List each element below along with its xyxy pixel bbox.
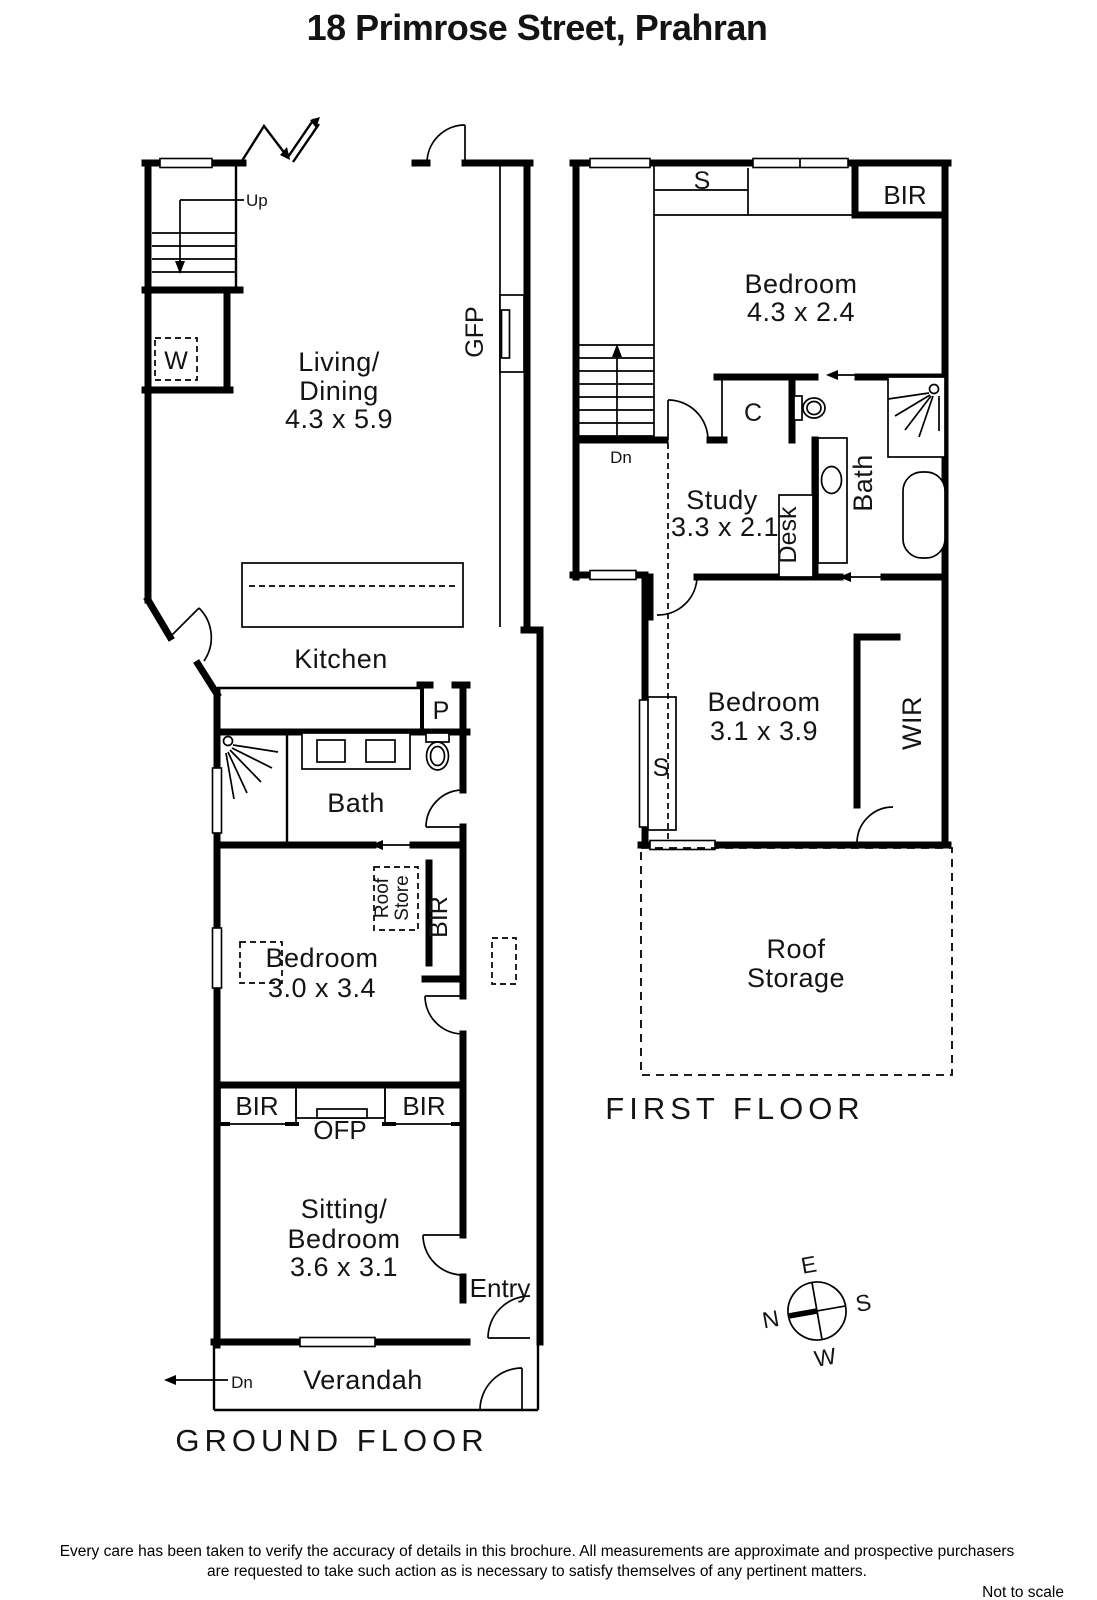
footer-line-2: are requested to take such action as is … xyxy=(207,1563,867,1580)
label-study: Study xyxy=(686,485,758,515)
footer-not-to-scale: Not to scale xyxy=(982,1584,1064,1600)
label-first-floor: FIRST FLOOR xyxy=(605,1091,864,1126)
label-bedroom1: Bedroom xyxy=(744,269,857,299)
ground-shower-icon xyxy=(224,737,279,800)
footer-line-1: Every care has been taken to verify the … xyxy=(60,1543,1015,1560)
label-sitting-dims: 3.6 x 3.1 xyxy=(290,1252,398,1282)
first-toilet xyxy=(794,396,825,420)
page-title: 18 Primrose Street, Prahran xyxy=(307,7,768,48)
label-cupboard: C xyxy=(744,399,762,427)
label-roof-storage-2: Storage xyxy=(747,963,845,993)
label-kitchen: Kitchen xyxy=(294,644,388,674)
label-entry: Entry xyxy=(470,1273,531,1303)
first-shower xyxy=(888,377,945,457)
label-roof-storage-1: Roof xyxy=(766,934,825,964)
label-pantry: P xyxy=(433,697,450,725)
label-bedroom2: Bedroom xyxy=(707,687,820,717)
open-fireplace xyxy=(296,1088,385,1118)
label-living-dims: 4.3 x 5.9 xyxy=(285,404,393,434)
label-dn-verandah: Dn xyxy=(231,1373,253,1392)
label-study-dims: 3.3 x 2.1 xyxy=(671,512,779,542)
compass-needle xyxy=(789,1311,817,1316)
compass-east: E xyxy=(799,1251,819,1279)
label-ground-floor: GROUND FLOOR xyxy=(175,1423,488,1458)
label-bath-ground: Bath xyxy=(327,788,385,818)
label-sitting-2: Bedroom xyxy=(287,1224,400,1254)
label-living-1: Living/ xyxy=(298,347,380,377)
label-bath-first: Bath xyxy=(848,454,878,512)
compass: E S W N xyxy=(752,1242,881,1379)
ground-toilet xyxy=(426,733,449,770)
label-roof-store-1: Roof xyxy=(372,877,393,918)
label-up: Up xyxy=(246,191,268,210)
label-washer: W xyxy=(164,347,188,375)
kitchen-island xyxy=(242,563,463,627)
label-ofp: OFP xyxy=(313,1115,366,1145)
label-bedroom-ground: Bedroom xyxy=(265,943,378,973)
label-dn-first: Dn xyxy=(610,448,632,467)
first-vanity xyxy=(818,438,847,563)
label-gfp: GFP xyxy=(461,306,489,357)
floorplan-canvas: E S W N 18 Primrose Street, Prahran Up W… xyxy=(0,0,1097,1600)
label-bedroom1-dims: 4.3 x 2.4 xyxy=(747,297,855,327)
gas-fireplace xyxy=(500,166,524,627)
label-wardrobe-s: S xyxy=(653,754,670,782)
compass-west: W xyxy=(812,1343,838,1372)
label-storage-s: S xyxy=(694,167,711,195)
label-bir-left: BIR xyxy=(235,1091,278,1121)
ground-vanity xyxy=(302,733,410,769)
label-sitting-1: Sitting/ xyxy=(301,1194,388,1224)
label-bir-hall: BIR xyxy=(425,896,453,938)
label-roof-store-2: Store xyxy=(392,875,413,920)
compass-north: N xyxy=(760,1305,781,1333)
label-desk: Desk xyxy=(774,506,802,563)
bathtub xyxy=(903,472,945,558)
label-living-2: Dining xyxy=(299,376,379,406)
label-bir-top: BIR xyxy=(883,180,926,210)
first-stairs xyxy=(578,344,654,436)
label-verandah: Verandah xyxy=(303,1365,423,1395)
compass-south: S xyxy=(853,1289,873,1317)
label-bir-right: BIR xyxy=(402,1091,445,1121)
label-wir: WIR xyxy=(897,696,927,750)
label-bedroom-ground-dims: 3.0 x 3.4 xyxy=(268,973,376,1003)
label-bedroom2-dims: 3.1 x 3.9 xyxy=(710,716,818,746)
